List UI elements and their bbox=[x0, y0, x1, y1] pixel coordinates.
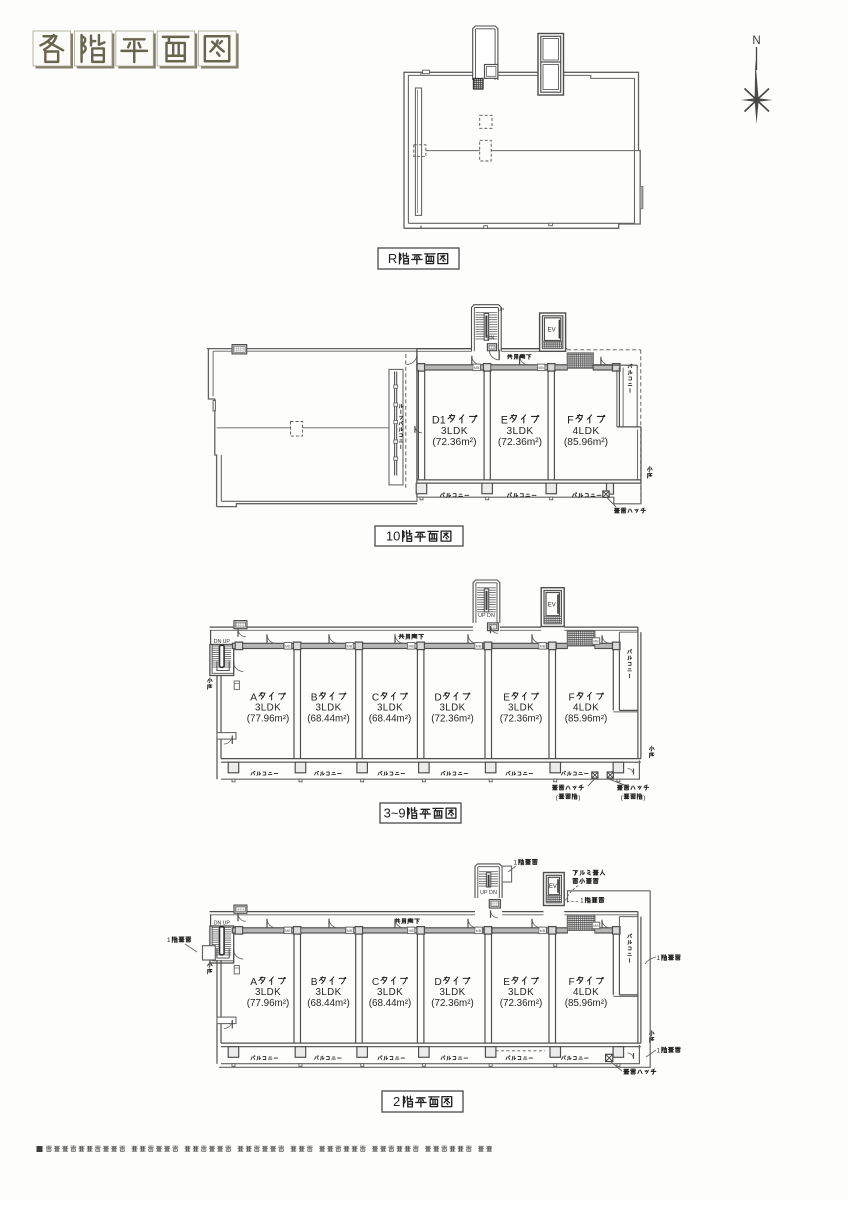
svg-text:MB: MB bbox=[540, 929, 546, 933]
svg-text:N: N bbox=[752, 35, 760, 47]
svg-text:4LDK: 4LDK bbox=[573, 987, 599, 998]
svg-text:DN UP: DN UP bbox=[214, 639, 231, 645]
svg-text:UP DN: UP DN bbox=[480, 890, 497, 896]
svg-text:MB: MB bbox=[593, 924, 599, 928]
svg-text:3LDK: 3LDK bbox=[508, 702, 534, 713]
svg-text:MB: MB bbox=[409, 645, 415, 649]
svg-text:D1: D1 bbox=[432, 414, 446, 426]
svg-text:E: E bbox=[501, 414, 508, 426]
svg-text:3LDK: 3LDK bbox=[255, 987, 281, 998]
svg-text:3LDK: 3LDK bbox=[439, 987, 465, 998]
svg-text:3LDK: 3LDK bbox=[439, 702, 465, 713]
svg-text:3LDK: 3LDK bbox=[377, 987, 403, 998]
svg-text:): ) bbox=[578, 794, 580, 801]
svg-text:(72.36m²): (72.36m²) bbox=[498, 437, 542, 448]
svg-text:1: 1 bbox=[657, 955, 661, 962]
svg-text:3LDK: 3LDK bbox=[506, 426, 533, 437]
svg-text:MB: MB bbox=[347, 645, 353, 649]
svg-text:): ) bbox=[643, 794, 645, 801]
svg-text:MB: MB bbox=[347, 929, 353, 933]
svg-text:EV: EV bbox=[549, 884, 557, 890]
svg-text:MB: MB bbox=[285, 929, 291, 933]
svg-text:(72.36m²): (72.36m²) bbox=[500, 998, 542, 1009]
svg-text:3LDK: 3LDK bbox=[508, 987, 534, 998]
svg-text:DN: DN bbox=[487, 336, 495, 342]
svg-text:(85.96m²): (85.96m²) bbox=[565, 714, 607, 725]
svg-text:2: 2 bbox=[393, 1094, 400, 1109]
svg-text:1: 1 bbox=[167, 937, 171, 944]
svg-text:(72.36m²): (72.36m²) bbox=[431, 998, 473, 1009]
svg-text:MB: MB bbox=[285, 645, 291, 649]
svg-text:(68.44m²): (68.44m²) bbox=[369, 998, 411, 1009]
svg-text:4LDK: 4LDK bbox=[572, 426, 599, 437]
svg-text:MB: MB bbox=[538, 366, 544, 370]
svg-text:F: F bbox=[567, 414, 574, 426]
svg-text:MB: MB bbox=[476, 929, 482, 933]
svg-text:3LDK: 3LDK bbox=[441, 426, 468, 437]
svg-text:(72.36m²): (72.36m²) bbox=[500, 714, 542, 725]
svg-text:(68.44m²): (68.44m²) bbox=[307, 998, 349, 1009]
svg-text:R: R bbox=[388, 251, 397, 266]
svg-text:3LDK: 3LDK bbox=[255, 702, 281, 713]
svg-text:10: 10 bbox=[386, 529, 400, 544]
svg-text:3LDK: 3LDK bbox=[377, 702, 403, 713]
svg-text:MB: MB bbox=[474, 366, 480, 370]
svg-text:1: 1 bbox=[657, 1047, 661, 1054]
svg-text:DN UP: DN UP bbox=[214, 921, 231, 927]
svg-text:(77.96m²): (77.96m²) bbox=[247, 998, 289, 1009]
svg-text:EV: EV bbox=[548, 602, 556, 608]
svg-text:MB: MB bbox=[540, 645, 546, 649]
svg-text:(72.36m²): (72.36m²) bbox=[431, 714, 473, 725]
svg-text:(77.96m²): (77.96m²) bbox=[247, 714, 289, 725]
svg-text:1: 1 bbox=[514, 860, 518, 867]
svg-text:MB: MB bbox=[409, 929, 415, 933]
svg-text:(85.96m²): (85.96m²) bbox=[565, 998, 607, 1009]
svg-text:EV: EV bbox=[548, 327, 556, 333]
svg-text:3LDK: 3LDK bbox=[315, 702, 341, 713]
svg-text:(72.36m²): (72.36m²) bbox=[432, 437, 476, 448]
svg-text:(68.44m²): (68.44m²) bbox=[307, 714, 349, 725]
svg-text:(85.96m²): (85.96m²) bbox=[564, 437, 608, 448]
svg-text:MB: MB bbox=[593, 640, 599, 644]
svg-text:4LDK: 4LDK bbox=[573, 702, 599, 713]
svg-text:UP DN: UP DN bbox=[478, 613, 495, 619]
svg-text:1: 1 bbox=[580, 898, 584, 905]
svg-text:UP: UP bbox=[498, 307, 504, 312]
svg-text:3LDK: 3LDK bbox=[315, 987, 341, 998]
svg-text:MB: MB bbox=[476, 645, 482, 649]
svg-text:(68.44m²): (68.44m²) bbox=[369, 714, 411, 725]
svg-text:3~9: 3~9 bbox=[384, 806, 406, 821]
